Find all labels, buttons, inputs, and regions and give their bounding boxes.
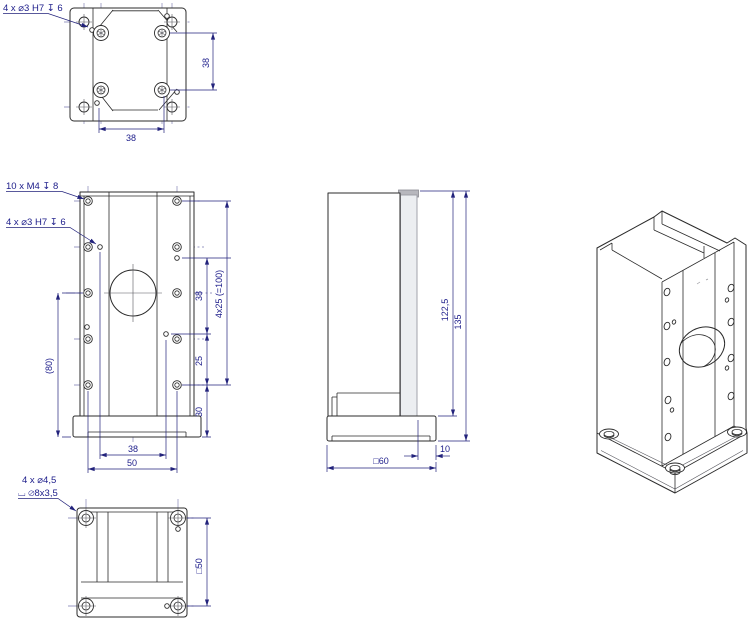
bottom-view-outline — [77, 508, 187, 617]
front-view: 10 x M4 ↧ 8 4 x ⌀3 H7 ↧ 6 38 25 30 4x25 … — [6, 181, 231, 473]
dim-label: □60 — [373, 456, 388, 466]
drawing-svg: 38 38 4 x ⌀3 H7 ↧ 6 — [0, 0, 750, 618]
dim-label: 4x25 (=100) — [214, 270, 224, 318]
bottom-view: □50 4 x ⌀4,5 ⌴ ⌀8x3,5 — [18, 475, 211, 617]
dim-label: 38 — [194, 291, 204, 301]
thread-callout: 10 x M4 ↧ 8 — [6, 181, 58, 192]
dim-label: 122,5 — [440, 299, 450, 322]
isometric-view — [597, 211, 747, 493]
side-view-body — [328, 193, 400, 416]
dim-label: □50 — [194, 558, 204, 573]
side-view: 122,5 135 10 □60 — [327, 190, 470, 472]
dim-label: 10 — [440, 444, 450, 454]
dim-label: 50 — [127, 458, 137, 468]
counterbore-callout-line1: 4 x ⌀4,5 — [22, 475, 56, 486]
side-view-base — [327, 416, 436, 441]
carriage-plate — [401, 195, 418, 416]
pin-callout: 4 x ⌀3 H7 ↧ 6 — [6, 217, 66, 228]
dim-label: (80) — [44, 358, 54, 374]
technical-drawing-sheet: 38 38 4 x ⌀3 H7 ↧ 6 — [0, 0, 750, 618]
dim-label: 38 — [128, 444, 138, 454]
front-view-base — [73, 416, 201, 437]
dim-label: 30 — [194, 407, 204, 417]
counterbore-callout-line2: ⌴ ⌀8x3,5 — [18, 488, 58, 499]
dim-label: 38 — [201, 58, 211, 68]
top-view: 38 38 4 x ⌀3 H7 ↧ 6 — [3, 3, 217, 143]
dim-label: 25 — [194, 356, 204, 366]
hole-callout: 4 x ⌀3 H7 ↧ 6 — [3, 3, 63, 14]
dim-label: 135 — [453, 314, 463, 329]
dim-label: 38 — [126, 133, 136, 143]
iso-silhouette — [597, 211, 747, 493]
